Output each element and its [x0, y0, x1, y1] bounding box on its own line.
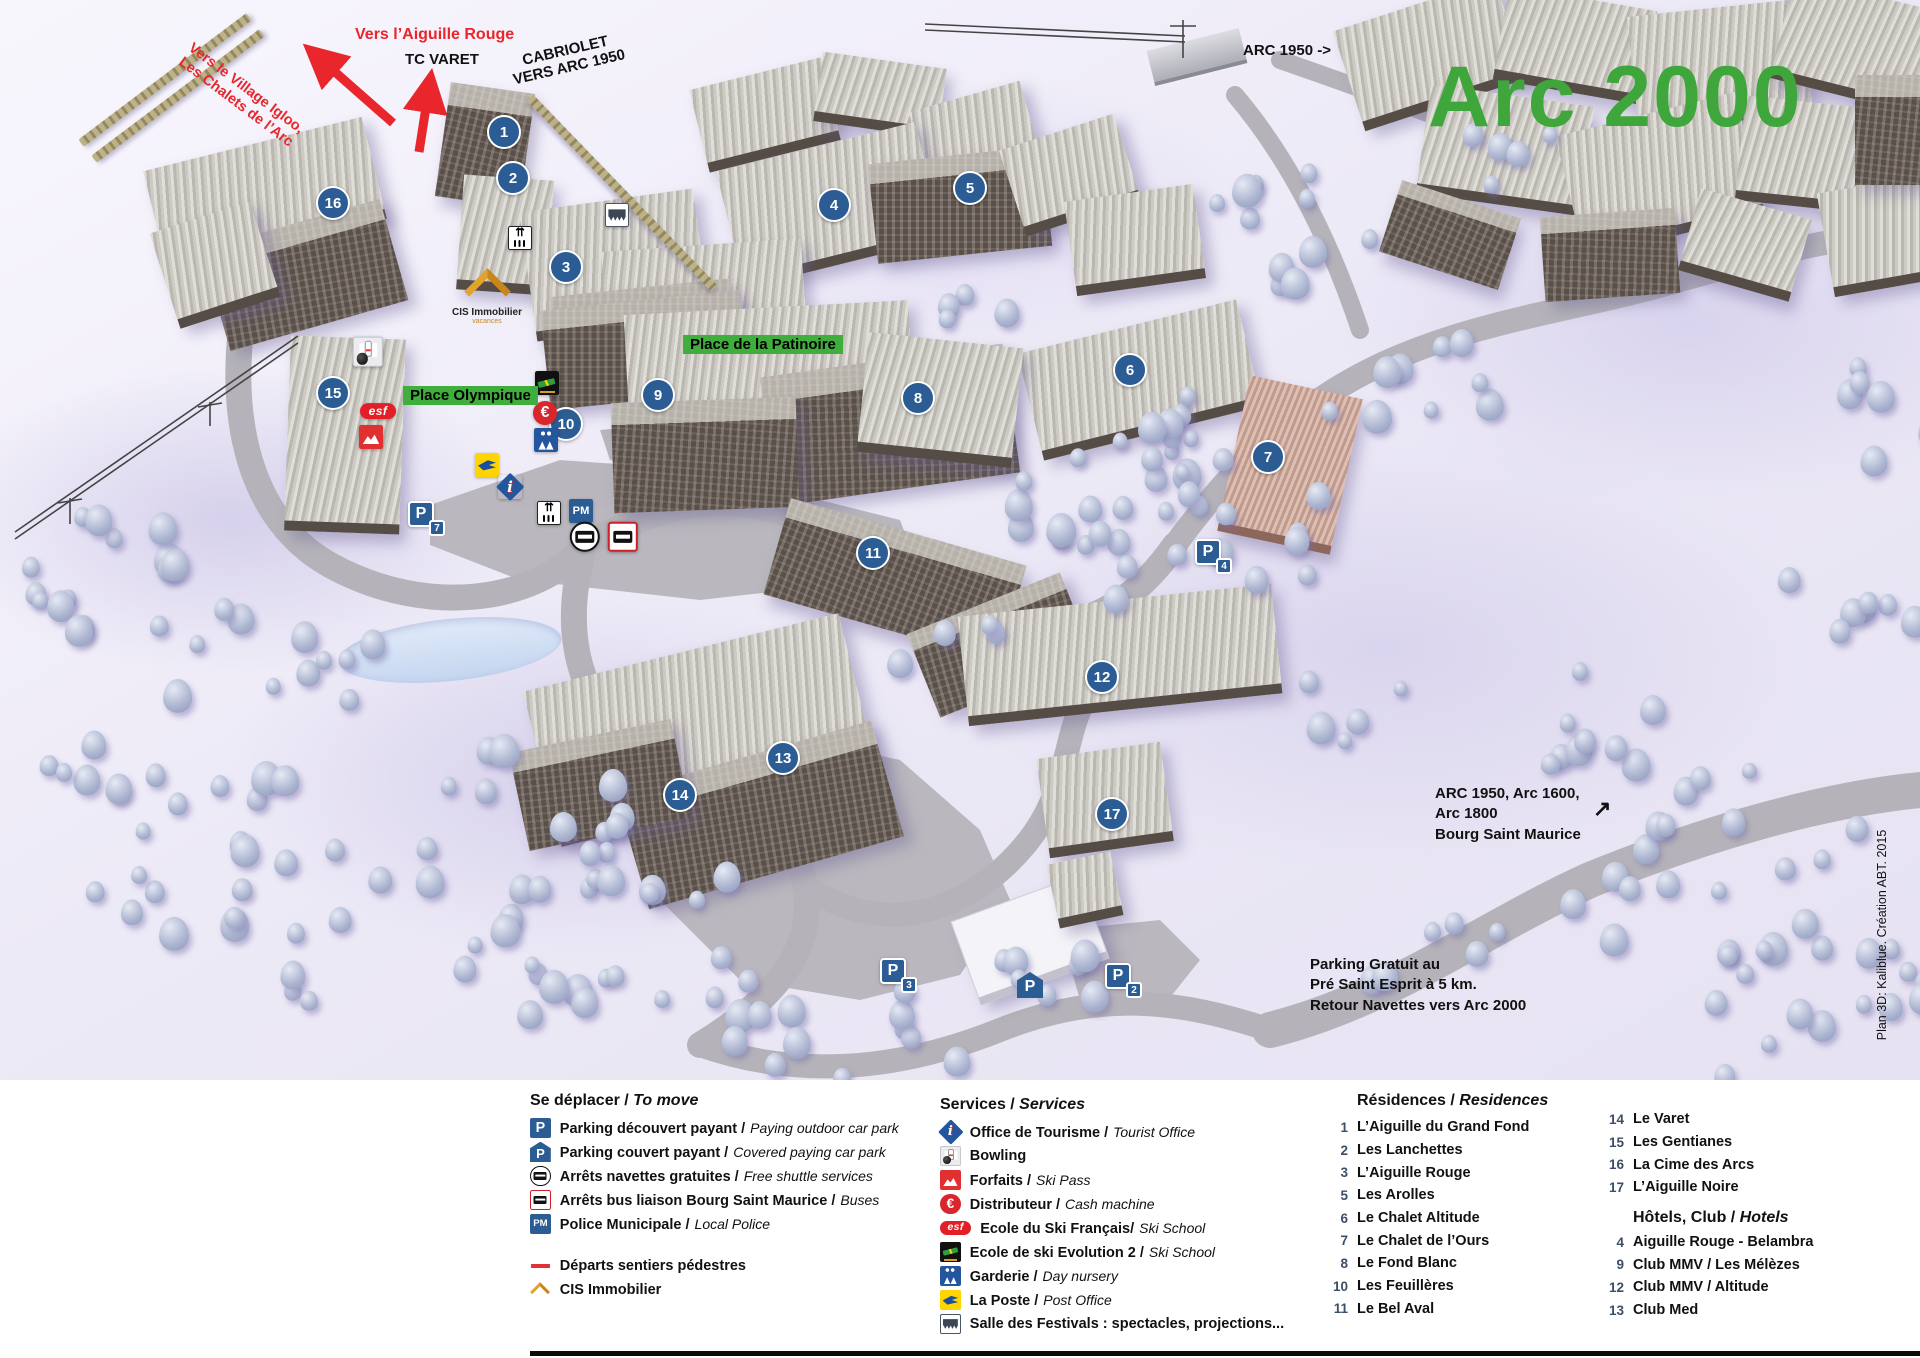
map-marker-7: 7 — [1251, 440, 1285, 474]
tree — [606, 965, 624, 986]
hotel-number: 4 — [1598, 1235, 1624, 1250]
tree — [214, 598, 233, 620]
marker-number: 8 — [914, 390, 922, 407]
L’Aiguille Noire: 17 L’Aiguille Noire — [1598, 1176, 1813, 1199]
tree — [765, 1052, 786, 1076]
tree — [1605, 735, 1628, 761]
tree — [1113, 433, 1128, 450]
parking-number: 3 — [901, 977, 917, 993]
resort-title: Arc 2000 — [1428, 48, 1803, 147]
tree — [1232, 174, 1262, 208]
tree — [360, 630, 385, 659]
Les Gentianes: 15 Les Gentianes — [1598, 1131, 1813, 1154]
tree — [340, 689, 359, 711]
tree — [1719, 945, 1737, 966]
map-marker-2: 2 — [496, 161, 530, 195]
Le Fond Blanc: 8 Le Fond Blanc — [1322, 1252, 1548, 1275]
tree — [417, 837, 438, 861]
tree — [453, 956, 476, 983]
residence-name: Le Chalet Altitude — [1357, 1210, 1480, 1226]
place-olympique-label: Place Olympique — [403, 386, 538, 405]
map-marker-15: 15 — [316, 376, 350, 410]
tree — [316, 651, 332, 669]
tree — [1690, 767, 1710, 790]
legend-row: Ecole de ski Evolution 2 /Ski School — [940, 1240, 1289, 1264]
tree — [1489, 923, 1505, 941]
tree — [1300, 163, 1317, 183]
tree — [301, 990, 319, 1010]
legend-move-extra-items: Départs sentiers pédestres CIS Immobilie… — [530, 1254, 899, 1302]
tree — [1814, 850, 1831, 869]
map-marker-12: 12 — [1085, 660, 1119, 694]
tree — [131, 866, 147, 884]
tree — [1088, 521, 1111, 547]
parking-marker-7: P 7 — [408, 501, 434, 527]
poste-icon — [940, 1290, 961, 1311]
esf-icon — [360, 403, 396, 419]
destinations-label: ARC 1950, Arc 1600, Arc 1800 Bourg Saint… — [1435, 784, 1581, 845]
tree — [1362, 400, 1392, 434]
building — [1817, 173, 1920, 297]
tree — [598, 865, 625, 897]
tree — [1424, 402, 1439, 419]
tree — [211, 775, 230, 797]
tree — [888, 649, 914, 679]
building — [1046, 851, 1123, 928]
Le Bel Aval: 11 Le Bel Aval — [1322, 1298, 1548, 1321]
tree — [1560, 890, 1586, 919]
bowling-icon — [353, 337, 383, 367]
Le Varet: 14 Le Varet — [1598, 1108, 1813, 1131]
tree — [1138, 412, 1166, 444]
tree — [1299, 670, 1319, 693]
marker-number: 2 — [509, 170, 517, 187]
marker-number: 14 — [672, 787, 689, 804]
tree — [1167, 543, 1187, 565]
legend-row: Bowling — [940, 1144, 1289, 1168]
tree — [1216, 502, 1236, 525]
tree — [1284, 526, 1309, 555]
tree — [1103, 585, 1128, 614]
tree — [1736, 964, 1754, 984]
tree — [1244, 566, 1269, 594]
map-marker-8: 8 — [901, 381, 935, 415]
tree — [85, 505, 112, 536]
residence-name: La Cime des Arcs — [1633, 1157, 1754, 1173]
residence-number: 6 — [1322, 1211, 1348, 1226]
marker-number: 9 — [654, 387, 662, 404]
tree — [81, 730, 106, 759]
residence-number: 3 — [1322, 1165, 1348, 1180]
tree — [441, 776, 457, 795]
tree — [1322, 402, 1338, 421]
Les Arolles: 5 Les Arolles — [1322, 1184, 1548, 1207]
bowling-icon — [940, 1146, 961, 1167]
building — [1540, 208, 1681, 302]
map-marker-9: 9 — [641, 378, 675, 412]
tree — [1005, 489, 1033, 522]
legend-row: Ecole du Ski Français/Ski School — [940, 1216, 1289, 1240]
tree — [272, 765, 299, 797]
legend-row: Police Municipale /Local Police — [530, 1212, 899, 1236]
tree — [86, 881, 105, 902]
tree — [689, 890, 705, 909]
tree — [1861, 446, 1888, 477]
festival-hall-icon — [605, 203, 629, 227]
tree — [148, 512, 177, 545]
tree — [1656, 871, 1680, 898]
tree — [325, 839, 345, 862]
marker-number: 13 — [775, 750, 792, 767]
tree — [1619, 876, 1641, 902]
map-marker-4: 4 — [817, 188, 851, 222]
tree — [981, 615, 998, 635]
tree — [74, 764, 101, 795]
La Cime des Arcs: 16 La Cime des Arcs — [1598, 1153, 1813, 1176]
tree — [1299, 235, 1327, 267]
legend-row: Parking découvert payant /Paying outdoor… — [530, 1116, 899, 1140]
tree — [1845, 816, 1868, 842]
residence-name: Le Fond Blanc — [1357, 1255, 1457, 1271]
legend-row: Salle des Festivals : spectacles, projec… — [940, 1312, 1289, 1336]
parking-outdoor-icon — [530, 1118, 551, 1139]
legend-row: Office de Tourisme /Tourist Office — [940, 1120, 1289, 1144]
tree — [713, 861, 740, 892]
skipass-icon — [940, 1170, 961, 1191]
police-icon — [569, 499, 593, 523]
legend-row: Arrêts bus liaison Bourg Saint Maurice /… — [530, 1188, 899, 1212]
parking-number: 7 — [429, 520, 445, 536]
parking-covered-marker: P — [1017, 972, 1043, 998]
tree — [1347, 708, 1370, 735]
map-marker-16: 16 — [316, 186, 350, 220]
tree — [1722, 808, 1746, 835]
Le Chalet de l’Ours: 7 Le Chalet de l’Ours — [1322, 1229, 1548, 1252]
building — [611, 397, 800, 513]
parking-marker-3: P 3 — [880, 958, 906, 984]
tree — [1640, 695, 1666, 725]
residence-name: Le Bel Aval — [1357, 1301, 1434, 1317]
tree — [1046, 513, 1076, 547]
L’Aiguille Rouge: 3 L’Aiguille Rouge — [1322, 1161, 1548, 1184]
resort-map-poster: Arc 2000 ARC 1950 -> Vers l’Aiguille Rou… — [0, 0, 1920, 1358]
tree — [1899, 962, 1917, 982]
bus-liaison-stop-icon — [608, 522, 638, 552]
marker-number: 5 — [966, 180, 974, 197]
tree — [416, 866, 445, 899]
marker-number: 11 — [865, 545, 881, 562]
legend-services-items: Office de Tourisme /Tourist Office Bowli… — [940, 1120, 1289, 1336]
cis-icon — [530, 1280, 551, 1301]
busliaison-icon — [530, 1190, 551, 1211]
marker-number: 10 — [558, 416, 575, 433]
tree — [150, 615, 168, 636]
tree — [232, 878, 252, 902]
tree — [711, 946, 732, 970]
tree — [1113, 496, 1134, 520]
residence-name: Les Feuillères — [1357, 1278, 1454, 1294]
marker-number: 6 — [1126, 362, 1134, 379]
tree — [517, 1000, 543, 1030]
tree — [944, 1046, 971, 1077]
tree — [933, 620, 956, 646]
residence-number: 15 — [1598, 1135, 1624, 1150]
residence-number: 5 — [1322, 1188, 1348, 1203]
tree — [1778, 567, 1800, 593]
residence-number: 17 — [1598, 1180, 1624, 1195]
residence-name: L’Aiguille Rouge — [1357, 1165, 1471, 1181]
tree — [1281, 267, 1309, 300]
residence-number: 11 — [1322, 1301, 1348, 1316]
marker-number: 4 — [830, 197, 838, 214]
tree — [833, 1068, 851, 1081]
building — [857, 332, 1024, 468]
tree — [1867, 381, 1895, 413]
stairs-pedestrian-icon — [537, 501, 561, 525]
legend-row: Garderie /Day nursery — [940, 1264, 1289, 1288]
residence-name: Les Arolles — [1357, 1187, 1435, 1203]
parking-letter: P — [1017, 972, 1043, 998]
tree — [889, 1000, 915, 1030]
tree — [280, 960, 305, 989]
Aiguille Rouge - Belambra: 4 Aiguille Rouge - Belambra — [1598, 1231, 1813, 1254]
aiguille-rouge-direction-label: Vers l’Aiguille Rouge — [355, 26, 514, 44]
map-credit: Plan 3D: Kaliblue. Création ABT. 2015 — [1875, 830, 1889, 1041]
shuttle-icon — [530, 1166, 551, 1187]
Le Chalet Altitude: 6 Le Chalet Altitude — [1322, 1207, 1548, 1230]
tree — [1209, 194, 1225, 212]
marker-number: 17 — [1104, 806, 1121, 823]
tree — [1471, 373, 1488, 393]
legend-residences-title: Résidences / Residences — [1357, 1092, 1548, 1110]
tree — [1158, 502, 1174, 520]
tree — [1792, 909, 1818, 939]
tree — [489, 734, 518, 768]
tree — [1373, 356, 1401, 388]
tree — [705, 987, 724, 1008]
marker-number: 3 — [562, 259, 570, 276]
residence-name: Les Gentianes — [1633, 1134, 1732, 1150]
destinations-arrow-icon: ↗ — [1593, 796, 1611, 822]
nursery-icon — [940, 1266, 961, 1287]
parking-number: 4 — [1216, 558, 1232, 574]
tree — [721, 1026, 747, 1056]
legend-hotels-column: 14 Le Varet 15 Les Gentianes 16 La Cime … — [1598, 1108, 1813, 1322]
map-marker-3: 3 — [549, 250, 583, 284]
residence-name: L’Aiguille du Grand Fond — [1357, 1119, 1529, 1135]
tree — [1761, 1034, 1777, 1052]
residence-number: 16 — [1598, 1157, 1624, 1172]
legend-hotels-title: Hôtels, Club / Hotels — [1633, 1209, 1813, 1227]
map-area: Arc 2000 ARC 1950 -> Vers l’Aiguille Rou… — [0, 0, 1920, 1080]
tree — [161, 548, 190, 581]
tree — [1786, 998, 1813, 1029]
residence-number: 10 — [1322, 1279, 1348, 1294]
map-marker-6: 6 — [1113, 353, 1147, 387]
tree — [579, 841, 600, 865]
tourisme-icon — [940, 1122, 961, 1143]
legend-move-title: Se déplacer / To move — [530, 1092, 899, 1110]
tc-varet-label: TC VARET — [405, 51, 479, 68]
residence-number: 1 — [1322, 1120, 1348, 1135]
tree — [1484, 176, 1499, 193]
evolution2-icon — [940, 1242, 961, 1263]
tree — [1179, 387, 1196, 406]
L’Aiguille du Grand Fond: 1 L’Aiguille du Grand Fond — [1322, 1116, 1548, 1139]
post-office-icon — [475, 453, 499, 477]
hotel-name: Club Med — [1633, 1302, 1698, 1318]
residence-number: 14 — [1598, 1112, 1624, 1127]
map-marker-13: 13 — [766, 741, 800, 775]
tree — [266, 678, 280, 695]
marker-number: 1 — [500, 124, 508, 141]
legend-row: Départs sentiers pédestres — [530, 1254, 899, 1278]
legend-row: Parking couvert payant /Covered paying c… — [530, 1140, 899, 1164]
tree — [1117, 555, 1137, 578]
tree — [1393, 680, 1408, 697]
tree — [1811, 935, 1833, 960]
marker-number: 16 — [325, 195, 342, 212]
tree — [1574, 729, 1596, 754]
tree — [163, 679, 193, 713]
tree — [1856, 995, 1872, 1013]
esf-icon — [940, 1221, 971, 1235]
tree — [145, 880, 165, 903]
day-nursery-icon — [534, 428, 558, 452]
tree — [550, 812, 576, 842]
tree — [528, 876, 551, 903]
tree — [747, 1001, 771, 1029]
legend-row: La Poste /Post Office — [940, 1288, 1289, 1312]
tree — [329, 907, 352, 933]
tree — [338, 649, 355, 669]
tree — [1705, 990, 1728, 1016]
map-marker-11: 11 — [856, 536, 890, 570]
marker-number: 12 — [1094, 669, 1111, 686]
tree — [121, 900, 143, 925]
tree — [33, 592, 48, 610]
evolution2-ski-school-icon — [535, 371, 559, 395]
residence-number: 7 — [1322, 1233, 1348, 1248]
Club MMV / Altitude: 12 Club MMV / Altitude — [1598, 1276, 1813, 1299]
parking-marker-2: P 2 — [1105, 963, 1131, 989]
tree — [1878, 594, 1897, 616]
tree — [1572, 662, 1588, 680]
tree — [56, 763, 72, 781]
parking-marker-4: P 4 — [1195, 539, 1221, 565]
tree — [475, 779, 497, 804]
legend-row: Distributeur /Cash machine — [940, 1192, 1289, 1216]
tree — [136, 823, 151, 840]
residence-name: Le Chalet de l’Ours — [1357, 1233, 1489, 1249]
residence-name: L’Aiguille Noire — [1633, 1179, 1739, 1195]
tree — [994, 298, 1019, 327]
trail-icon — [530, 1256, 551, 1277]
tree — [654, 990, 670, 1008]
tree — [525, 957, 540, 974]
tree — [1141, 447, 1163, 472]
residence-number: 2 — [1322, 1143, 1348, 1158]
map-marker-14: 14 — [663, 778, 697, 812]
tree — [1711, 882, 1727, 900]
legend-residences-items: 1 L’Aiguille du Grand Fond 2 Les Lanchet… — [1322, 1116, 1548, 1320]
tree — [641, 882, 659, 902]
legend-row: Forfaits /Ski Pass — [940, 1168, 1289, 1192]
tree — [1175, 463, 1190, 480]
legend-row: CIS Immobilier — [530, 1278, 899, 1302]
free-parking-note: Parking Gratuit au Pré Saint Esprit à 5 … — [1310, 955, 1526, 1016]
Club MMV / Les Mélèzes: 9 Club MMV / Les Mélèzes — [1598, 1253, 1813, 1276]
building — [1855, 75, 1920, 185]
tree — [1829, 619, 1850, 643]
legend-services-column: Services / Services Office de Tourisme /… — [940, 1096, 1289, 1336]
tree — [783, 1027, 811, 1059]
tree — [1424, 921, 1442, 942]
tree — [287, 923, 305, 944]
map-marker-17: 17 — [1095, 797, 1129, 831]
residence-name: Les Lanchettes — [1357, 1142, 1463, 1158]
hotel-number: 12 — [1598, 1280, 1624, 1295]
parking-covered-icon — [530, 1142, 551, 1163]
hotel-number: 13 — [1598, 1303, 1624, 1318]
tree — [1756, 940, 1773, 959]
marker-number: 7 — [1264, 449, 1272, 466]
tree — [1541, 753, 1559, 774]
tree — [1449, 329, 1473, 357]
tree — [738, 969, 758, 992]
tree — [1213, 448, 1234, 472]
tree — [275, 849, 299, 876]
tree — [1078, 495, 1101, 522]
tree — [599, 769, 627, 801]
tree — [105, 773, 132, 804]
Les Lanchettes: 2 Les Lanchettes — [1322, 1139, 1548, 1162]
parking-number: 2 — [1126, 982, 1142, 998]
pm-icon — [530, 1214, 551, 1235]
cash-icon — [940, 1194, 961, 1215]
tree — [1742, 763, 1756, 779]
tree — [598, 842, 616, 862]
marker-number: 15 — [325, 385, 342, 402]
tree — [605, 812, 628, 839]
hotel-name: Aiguille Rouge - Belambra — [1633, 1234, 1813, 1250]
legend-services-title: Services / Services — [940, 1096, 1289, 1114]
place-patinoire-label: Place de la Patinoire — [683, 335, 843, 354]
tree — [231, 834, 260, 867]
tree — [1299, 189, 1315, 207]
hotel-name: Club MMV / Les Mélèzes — [1633, 1257, 1800, 1273]
building — [1064, 184, 1206, 296]
hotel-name: Club MMV / Altitude — [1633, 1279, 1769, 1295]
residence-name: Le Varet — [1633, 1111, 1689, 1127]
tree — [1178, 481, 1200, 507]
legend-row: Arrêts navettes gratuites /Free shuttle … — [530, 1164, 899, 1188]
legend-move-items: Parking découvert payant /Paying outdoor… — [530, 1116, 899, 1236]
tree — [1445, 913, 1464, 934]
tree — [168, 793, 188, 816]
tree — [1070, 939, 1099, 972]
tree — [22, 557, 40, 578]
hotel-number: 9 — [1598, 1257, 1624, 1272]
tree — [65, 615, 93, 647]
legend-residences-items2: 14 Le Varet 15 Les Gentianes 16 La Cime … — [1598, 1108, 1813, 1199]
map-marker-5: 5 — [953, 171, 987, 205]
tree — [1298, 564, 1316, 585]
building — [284, 336, 406, 535]
tree — [1361, 229, 1378, 249]
tree — [1307, 712, 1336, 745]
tree — [777, 995, 806, 1028]
